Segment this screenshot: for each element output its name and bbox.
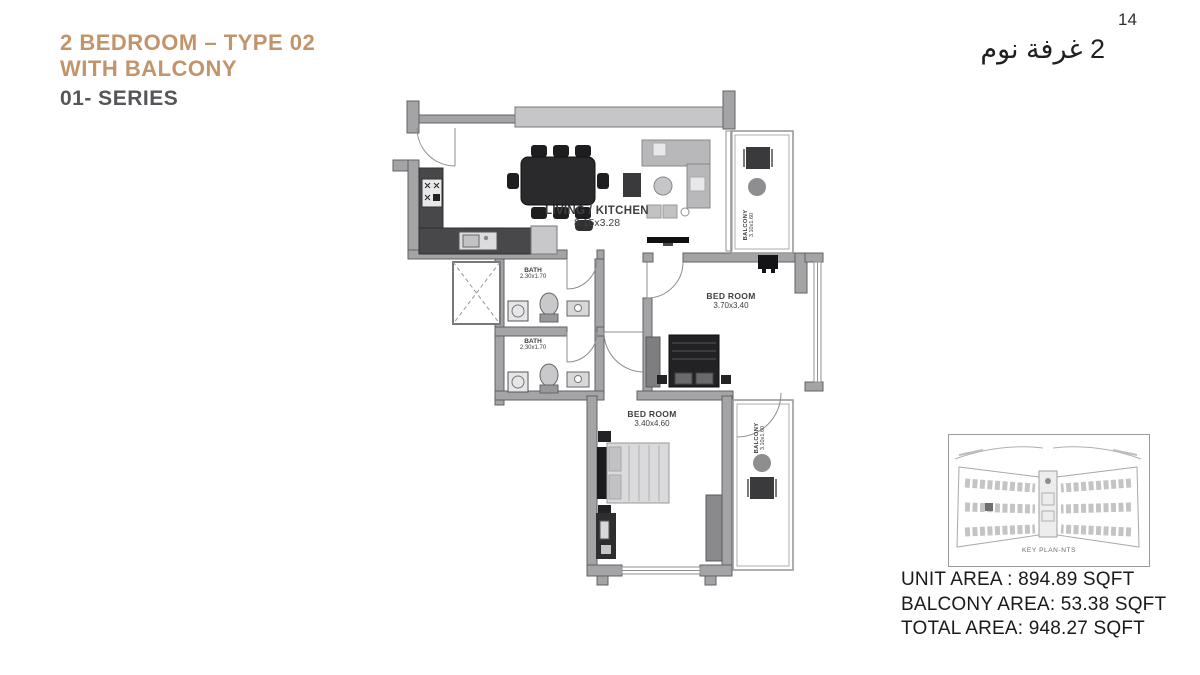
- arabic-title: 2 غرفة نوم: [905, 34, 1105, 65]
- room-label-balcony-bottom: BALCONY 3.10x1.60: [754, 408, 770, 468]
- balcony-top-furniture: [744, 147, 772, 196]
- page-title: 2 BEDROOM – TYPE 02 WITH BALCONY 01- SER…: [60, 30, 315, 112]
- highlighted-unit: [985, 503, 993, 511]
- toilet-icon: [540, 364, 558, 386]
- headboard-icon: [597, 447, 607, 499]
- room-label-bedroom-right: BED ROOM 3.70x3.40: [681, 291, 781, 310]
- bedroom-bottom-furniture: [596, 431, 722, 561]
- balcony-chair-icon: [746, 147, 770, 169]
- balcony-railings: [731, 131, 793, 570]
- armchair-icon: [623, 173, 641, 197]
- fridge-icon: [531, 226, 557, 254]
- room-label-balcony-top: BALCONY 3.10x1.60: [743, 195, 759, 255]
- room-label-bedroom-bottom: BED ROOM 3.40x4.60: [592, 409, 712, 428]
- floor-plan-drawing: [385, 85, 830, 590]
- unit-area: UNIT AREA : 894.89 SQFT: [901, 568, 1166, 593]
- series-label: 01- SERIES: [60, 86, 315, 112]
- room-label-bath-bottom: BATH 2.30x1.70: [493, 338, 573, 351]
- room-label-bath-top: BATH 2.30x1.70: [493, 267, 573, 280]
- brochure-page: 2 BEDROOM – TYPE 02 WITH BALCONY 01- SER…: [0, 0, 1200, 675]
- entry-door-arc: [417, 128, 455, 166]
- key-plan: KEY PLAN-NTS: [948, 434, 1150, 567]
- bath1-fixtures: [508, 293, 589, 322]
- key-plan-caption: KEY PLAN-NTS: [949, 547, 1149, 554]
- total-area: TOTAL AREA: 948.27 SQFT: [901, 617, 1166, 642]
- ac-unit-icon: [758, 255, 778, 269]
- area-summary: UNIT AREA : 894.89 SQFT BALCONY AREA: 53…: [901, 568, 1166, 642]
- living-furniture: [623, 140, 710, 246]
- bedroom1-door-arc: [647, 262, 683, 298]
- tv-icon: [647, 237, 689, 243]
- toilet-icon: [540, 293, 558, 315]
- floor-plan: LIVING / KITCHEN 8.15x3.28 BATH 2.30x1.7…: [385, 85, 830, 590]
- balcony-table-icon: [748, 178, 766, 196]
- room-label-living: LIVING / KITCHEN 8.15x3.28: [527, 205, 667, 229]
- balcony-chair-icon: [750, 477, 774, 499]
- balcony-area: BALCONY AREA: 53.38 SQFT: [901, 593, 1166, 618]
- title-line-2: WITH BALCONY: [60, 56, 315, 82]
- title-line-1: 2 BEDROOM – TYPE 02: [60, 30, 315, 56]
- key-plan-sketch: [949, 435, 1147, 564]
- wardrobe-icon: [706, 495, 722, 561]
- hall-door-arc: [604, 332, 644, 372]
- page-number: 14: [1118, 10, 1137, 30]
- bath2-fixtures: [508, 364, 589, 393]
- round-table-icon: [654, 177, 672, 195]
- bedroom-right-furniture: [646, 255, 778, 387]
